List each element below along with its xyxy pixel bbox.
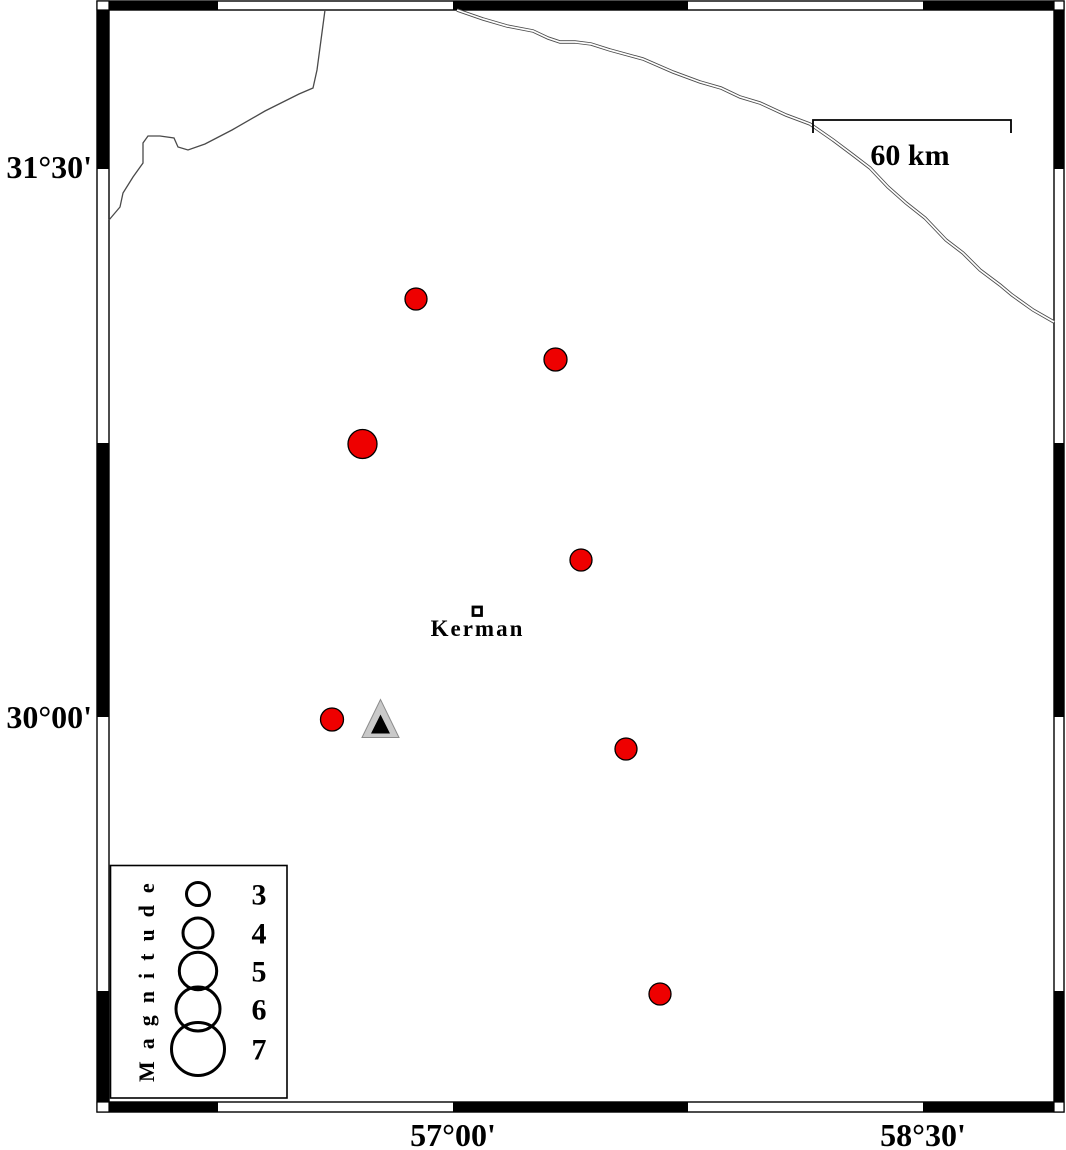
frame-band-left	[97, 443, 109, 717]
legend-value: 6	[252, 994, 267, 1027]
frame-corner	[1054, 1102, 1064, 1112]
frame-band-right	[1054, 991, 1064, 1102]
legend-title: Magnitude	[134, 871, 159, 1082]
frame-band-top	[453, 1, 688, 10]
frame-band-bottom	[923, 1102, 1054, 1112]
legend-value: 3	[252, 879, 267, 912]
map-figure: 60 km 31°30' 30°00' 57°00' 58°30' Kerman…	[0, 0, 1066, 1150]
kerman-marker	[473, 607, 482, 616]
epicenter-marker	[544, 348, 567, 371]
frame-band-right	[1054, 10, 1064, 169]
epicenter-marker	[348, 430, 377, 459]
axis-label-lat-31-30: 31°30'	[6, 149, 92, 185]
legend-value: 7	[252, 1034, 267, 1067]
frame-band-left	[97, 991, 109, 1102]
map-svg: 60 km 31°30' 30°00' 57°00' 58°30' Kerman…	[0, 0, 1066, 1150]
axis-label-lat-30-00: 30°00'	[6, 699, 92, 735]
frame-band-left	[97, 10, 109, 169]
epicenter-marker	[570, 549, 592, 571]
legend: Magnitude 34567	[111, 866, 288, 1099]
axis-label-lon-57-00: 57°00'	[410, 1117, 496, 1150]
frame-band-bottom	[109, 1102, 218, 1112]
frame-band-top	[109, 1, 218, 10]
frame-band-top	[923, 1, 1054, 10]
kerman-label: Kerman	[431, 616, 525, 641]
frame-corner	[97, 1, 109, 10]
epicenter-marker	[615, 738, 637, 760]
epicenter-marker	[405, 288, 427, 310]
frame-band-right	[1054, 443, 1064, 717]
frame-corner	[1054, 1, 1064, 10]
frame-band-bottom	[453, 1102, 688, 1112]
scale-bar-label: 60 km	[870, 139, 949, 172]
legend-value: 4	[252, 918, 267, 951]
frame-corner	[97, 1102, 109, 1112]
axis-label-lon-58-30: 58°30'	[880, 1117, 966, 1150]
epicenter-marker	[649, 983, 671, 1005]
epicenter-marker	[321, 708, 344, 731]
legend-value: 5	[252, 956, 267, 989]
